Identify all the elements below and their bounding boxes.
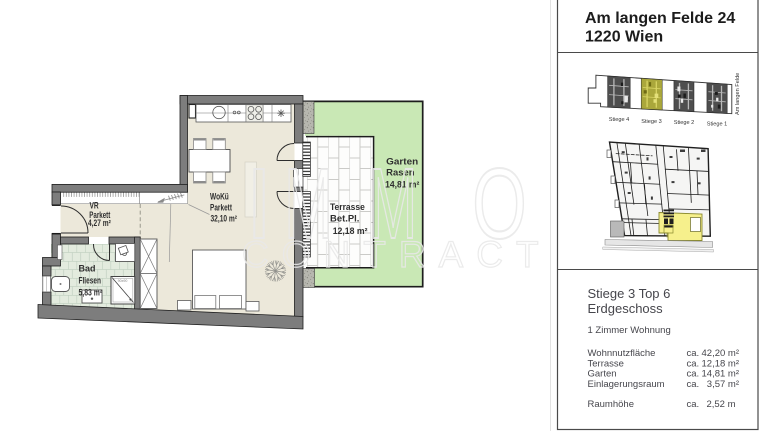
svg-text:Bet.Pl.: Bet.Pl. [330,213,359,223]
svg-text:Terrasse: Terrasse [330,202,365,212]
svg-text:Fliesen: Fliesen [79,276,102,286]
svg-text:Wohnnutzfläche: Wohnnutzfläche [588,348,656,359]
svg-text:Stiege 2: Stiege 2 [674,120,695,126]
svg-text:2,52 m: 2,52 m [706,399,735,410]
svg-text:Bad: Bad [79,263,96,273]
svg-text:1 Zimmer Wohnung: 1 Zimmer Wohnung [588,325,671,336]
svg-text:ca.: ca. [687,399,700,410]
svg-text:Stiege 3: Stiege 3 [641,119,662,125]
svg-text:Stiege 3 Top 6: Stiege 3 Top 6 [588,286,671,301]
svg-text:Erdgeschoss: Erdgeschoss [588,301,664,316]
svg-text:ca.: ca. [687,379,700,390]
svg-text:Raumhöhe: Raumhöhe [588,399,634,410]
svg-text:Stiege 4: Stiege 4 [609,117,630,123]
svg-text:Garten: Garten [588,369,617,380]
svg-text:Parkett: Parkett [210,203,232,213]
svg-text:Am langen Felde 24: Am langen Felde 24 [585,10,735,27]
svg-text:3,57 m²: 3,57 m² [707,379,739,390]
svg-text:Einlagerungsraum: Einlagerungsraum [588,379,665,390]
svg-text:ca.: ca. [687,348,700,359]
svg-text:1220 Wien: 1220 Wien [585,29,663,46]
svg-text:32,10 m²: 32,10 m² [211,214,238,224]
svg-text:4,27 m²: 4,27 m² [88,218,111,228]
svg-text:Am langen Felde: Am langen Felde [735,73,741,115]
svg-text:5,83 m²: 5,83 m² [79,288,103,298]
svg-text:Stiege 1: Stiege 1 [707,122,728,128]
svg-text:CONTRACT: CONTRACT [242,234,552,275]
svg-text:WoKü: WoKü [210,192,229,202]
svg-text:14,81 m²: 14,81 m² [702,369,740,380]
svg-text:ca.: ca. [687,369,700,380]
svg-text:42,20 m²: 42,20 m² [702,348,740,359]
svg-text:90x90: 90x90 [118,279,128,283]
